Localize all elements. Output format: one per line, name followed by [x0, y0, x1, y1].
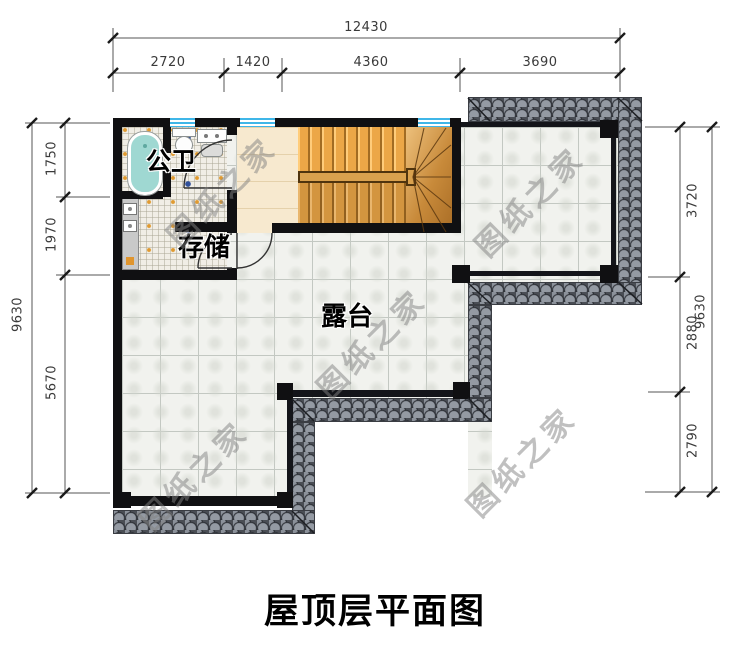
dimension-ticks: [27, 33, 717, 498]
dim-right-total: 9630: [694, 282, 709, 342]
dim-right-seg: 3720: [686, 171, 701, 231]
dim-top-seg: 3690: [510, 55, 570, 70]
dim-top-total: 12430: [336, 20, 396, 35]
dim-top-seg: 2720: [138, 55, 198, 70]
stair-winder-lines: [413, 128, 451, 232]
room-label-bathroom: 公卫: [146, 150, 196, 175]
dim-left-total: 9630: [11, 285, 26, 345]
floor-plan-sheet: 12430 2720 1420 4360 3690 1750 1970 5670…: [0, 0, 750, 662]
dim-top-seg: 1420: [223, 55, 283, 70]
dim-left-seg: 1970: [45, 205, 60, 265]
dim-top-seg: 4360: [341, 55, 401, 70]
drawing-title: 屋顶层平面图: [230, 583, 520, 634]
dim-right-seg: 2790: [686, 411, 701, 471]
dimension-lines: [25, 28, 720, 493]
dim-left-seg: 1750: [45, 129, 60, 189]
dim-left-seg: 5670: [45, 353, 60, 413]
